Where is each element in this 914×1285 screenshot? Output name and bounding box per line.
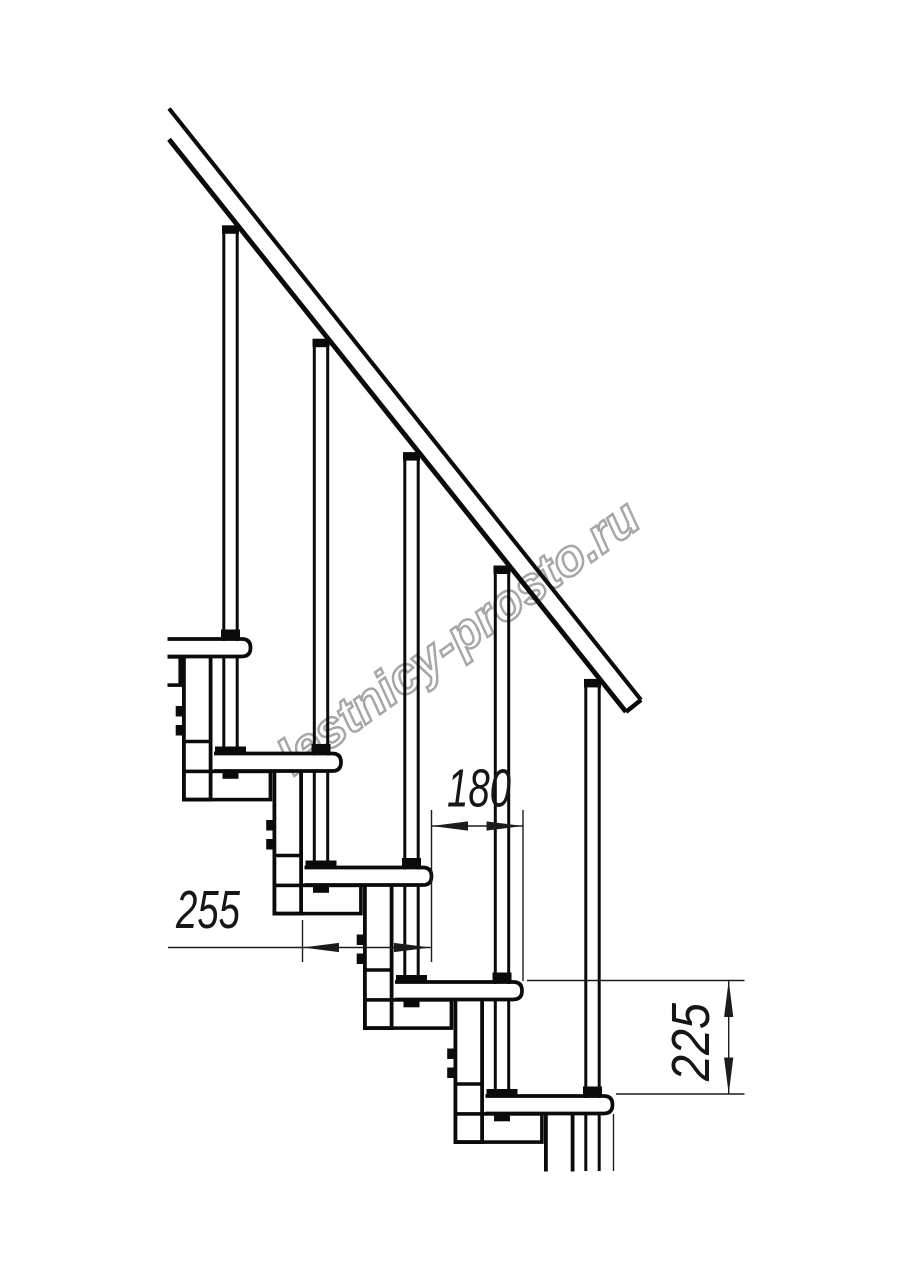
svg-text:225: 225 [661,1002,721,1082]
svg-text:255: 255 [175,880,240,940]
svg-text:180: 180 [447,759,511,819]
